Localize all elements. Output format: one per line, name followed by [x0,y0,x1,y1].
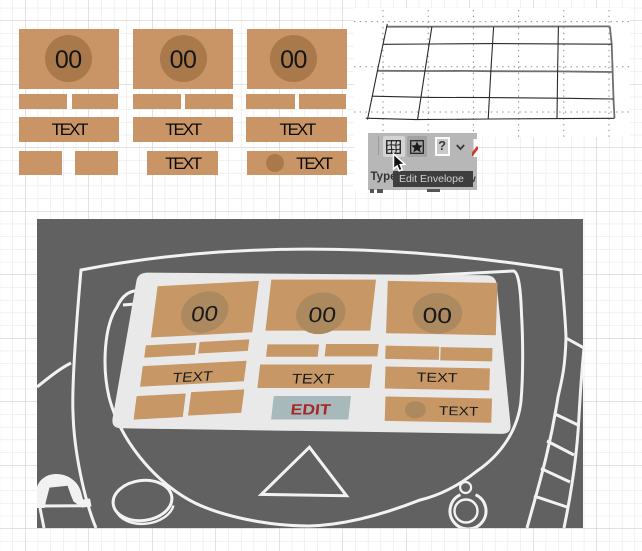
svg-text:TEXT: TEXT [439,403,479,418]
svg-text:00: 00 [422,304,452,329]
svg-text:TEXT: TEXT [416,371,457,386]
svg-text:00: 00 [307,303,337,327]
svg-text:00: 00 [190,301,220,327]
svg-text:EDIT: EDIT [290,402,332,418]
svg-text:TEXT: TEXT [172,369,214,386]
svg-text:TEXT: TEXT [291,371,336,387]
